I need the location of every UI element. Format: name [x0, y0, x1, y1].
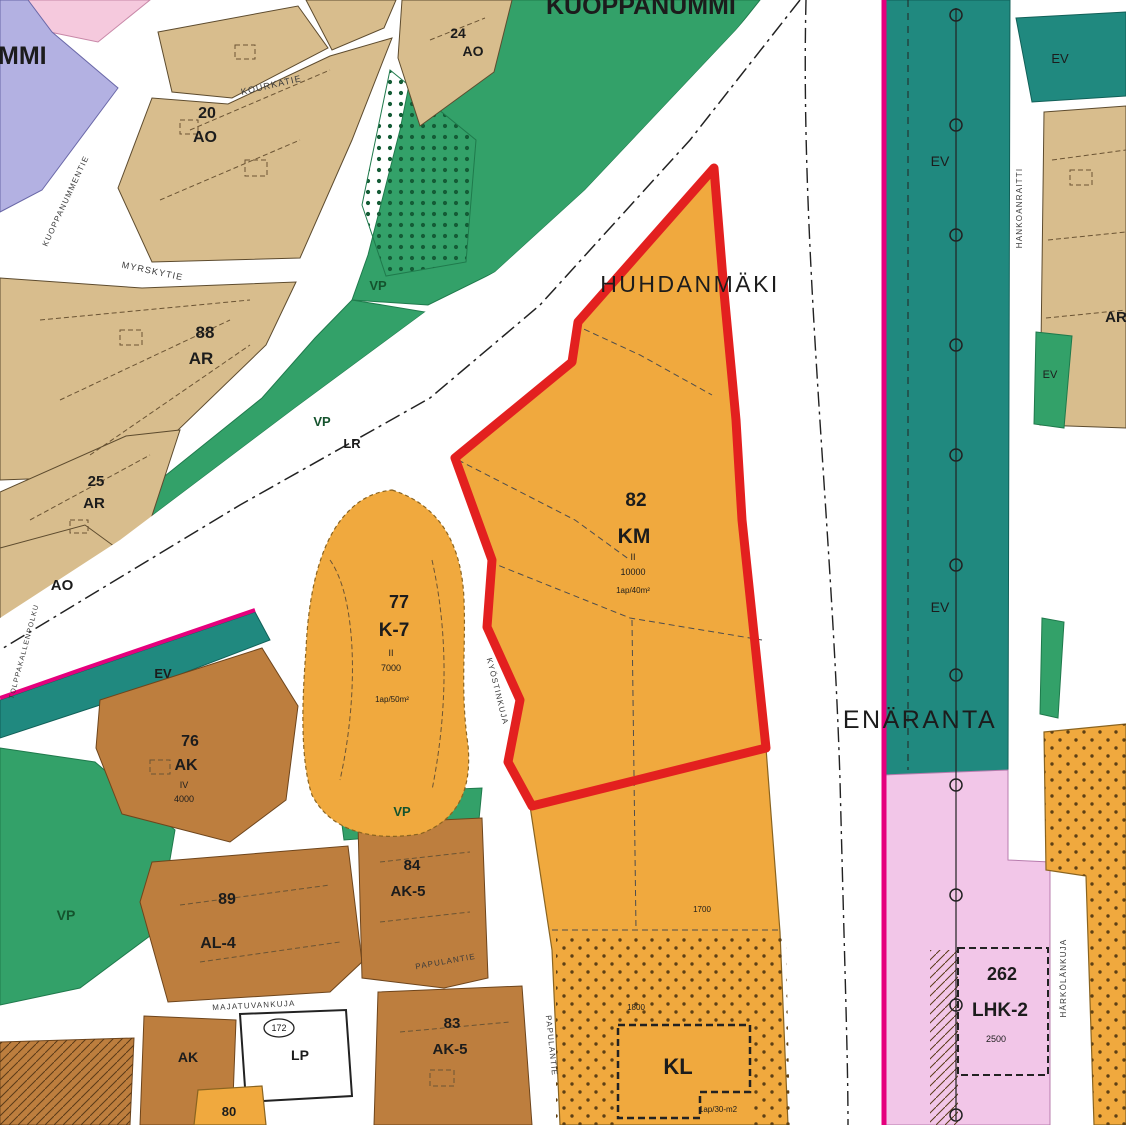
- street-harkolankuja: HÄRKÖLÄNKUJA: [1059, 939, 1068, 1018]
- label-1700: 1700: [693, 905, 711, 914]
- label-ev-left: EV: [154, 666, 172, 681]
- label-76: 76: [181, 733, 199, 750]
- label-77-k7: K-7: [379, 620, 410, 641]
- label-20-ao: AO: [193, 129, 217, 146]
- label-vp-1: VP: [369, 278, 387, 293]
- label-77: 77: [389, 592, 409, 612]
- label-77-storeys: II: [388, 648, 393, 658]
- zone-ev-strip-right: [884, 0, 1010, 778]
- label-ev-sliver: EV: [1043, 369, 1058, 381]
- label-77-area: 7000: [381, 663, 401, 673]
- label-82-storeys: II: [630, 552, 635, 562]
- label-262-lhk2: LHK-2: [972, 1000, 1028, 1021]
- street-hankoanraitti: HANKOANRAITTI: [1015, 168, 1024, 249]
- label-88-ar: AR: [189, 349, 214, 368]
- label-lp: LP: [291, 1047, 309, 1063]
- lp-badge: 172: [264, 1019, 294, 1037]
- label-82-km: KM: [618, 525, 651, 548]
- label-24-ao: AO: [463, 43, 484, 59]
- label-20: 20: [198, 105, 216, 122]
- label-76-ak: AK: [174, 757, 198, 774]
- label-vp-3: VP: [393, 804, 411, 819]
- label-vp-4: VP: [57, 907, 76, 923]
- label-ar-right: AR: [1105, 309, 1126, 326]
- label-24: 24: [450, 25, 466, 41]
- place-kuoppanummi: KUOPPANUMMI: [546, 0, 736, 20]
- zoning-map-canvas[interactable]: KUOPPANUMMI HUHDANMÄKI ENÄRANTA MMI 20 A…: [0, 0, 1126, 1125]
- label-89-al4: AL-4: [200, 935, 236, 952]
- label-88: 88: [196, 323, 215, 342]
- label-76-area: 4000: [174, 794, 194, 804]
- label-ak-small: AK: [178, 1049, 198, 1065]
- corner-hatch: [0, 1038, 134, 1125]
- label-25: 25: [88, 473, 105, 490]
- lp-badge-number: 172: [271, 1023, 286, 1033]
- label-82: 82: [625, 490, 646, 511]
- label-77-parking: 1ap/50m²: [375, 695, 409, 704]
- zone-89-al4-block: [140, 846, 362, 1002]
- label-82-parking: 1ap/40m²: [616, 586, 650, 595]
- label-262: 262: [987, 964, 1017, 984]
- label-84-ak5: AK-5: [390, 883, 425, 900]
- label-89: 89: [218, 891, 236, 908]
- label-kl: KL: [663, 1054, 692, 1079]
- place-huhdanmaki: HUHDANMÄKI: [600, 271, 780, 297]
- label-ev-top-right: EV: [1051, 51, 1069, 66]
- label-ev-right-1: EV: [931, 153, 950, 169]
- label-lr: LR: [343, 436, 361, 451]
- label-kl-parking: 1ap/30-m2: [699, 1105, 738, 1114]
- zoning-map-svg: KUOPPANUMMI HUHDANMÄKI ENÄRANTA MMI 20 A…: [0, 0, 1126, 1125]
- label-vp-2: VP: [313, 414, 331, 429]
- place-enaranta: ENÄRANTA: [843, 706, 997, 734]
- label-83: 83: [444, 1015, 461, 1032]
- label-82-area: 10000: [620, 567, 645, 577]
- label-83-ak5: AK-5: [432, 1041, 467, 1058]
- label-ao-small: AO: [51, 577, 74, 594]
- label-25-ar: AR: [83, 495, 105, 512]
- label-80: 80: [222, 1104, 236, 1119]
- lhk-hatch-strip: [930, 950, 958, 1125]
- label-84: 84: [404, 857, 421, 874]
- label-76-storeys: IV: [180, 780, 189, 790]
- zone-ev-top-right: [1016, 12, 1126, 102]
- label-kl-area: 1800: [627, 1003, 645, 1012]
- place-mmi-partial: MMI: [0, 42, 47, 70]
- label-262-area: 2500: [986, 1034, 1006, 1044]
- label-ev-right-2: EV: [931, 599, 950, 615]
